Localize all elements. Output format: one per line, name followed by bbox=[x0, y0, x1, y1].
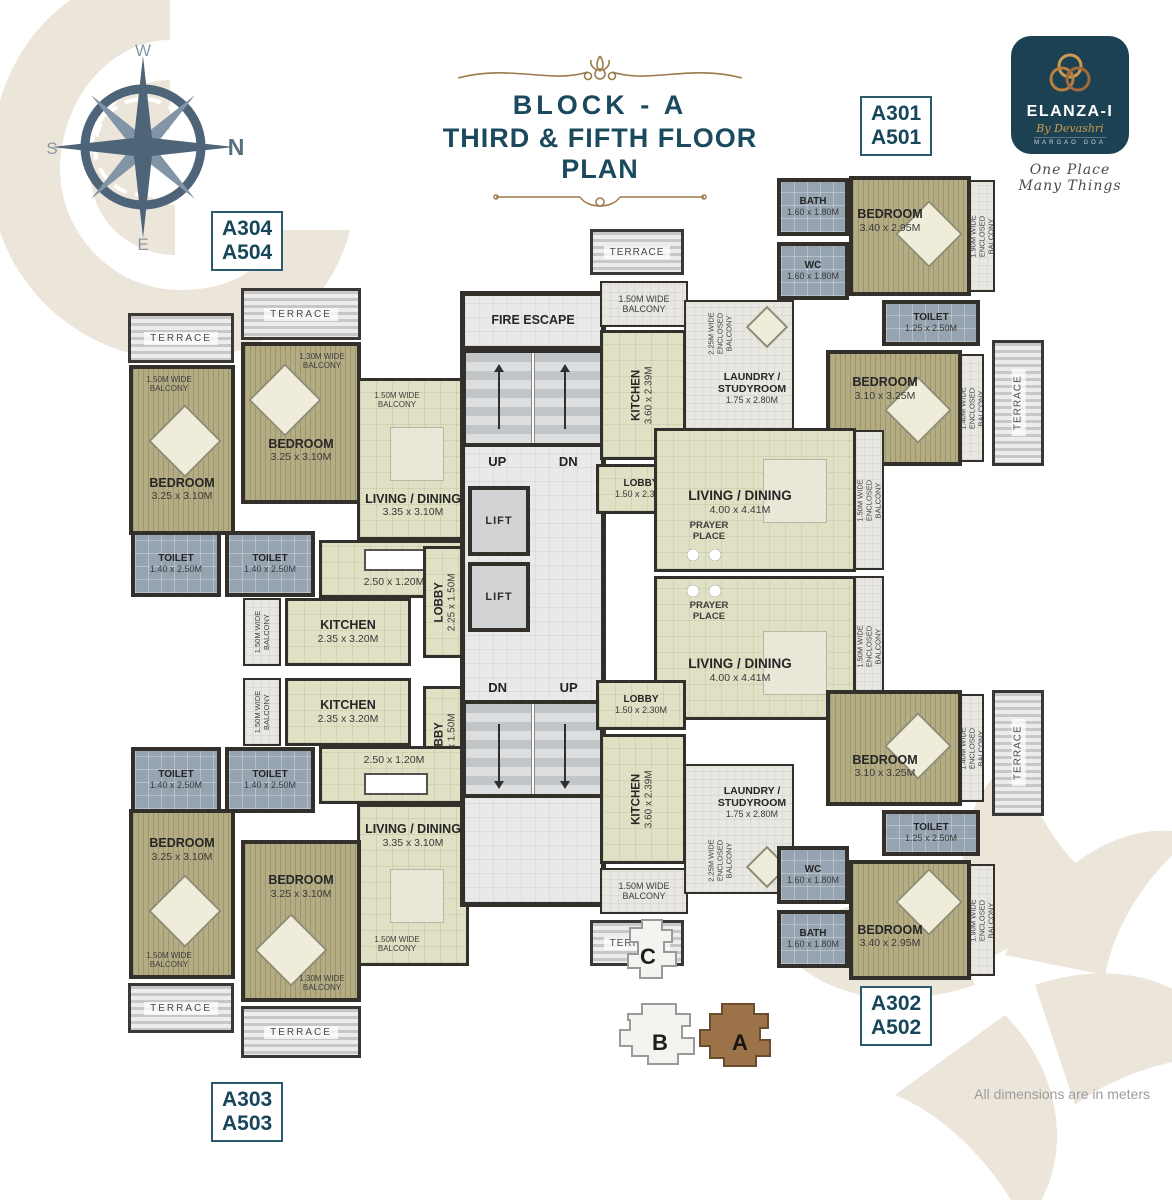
room-bedroom: BEDROOM 3.40 x 2.95M bbox=[849, 860, 971, 980]
balcony-label: 1.40M WIDE ENCLOSED BALCONY bbox=[959, 716, 986, 780]
balcony-label: 1.50M WIDE ENCLOSED BALCONY bbox=[856, 467, 883, 533]
unit-number: A302 bbox=[871, 992, 921, 1016]
room-label: BEDROOM 3.25 x 3.10M bbox=[245, 438, 357, 464]
terrace-label: TERRACE bbox=[1011, 370, 1025, 437]
terrace-label: TERRACE bbox=[604, 246, 671, 259]
unit-label-a302-a502: A302 A502 bbox=[860, 986, 932, 1046]
logo-brand-text: ELANZA-I bbox=[1027, 103, 1114, 121]
room-living-dining: LIVING / DINING 4.00 x 4.41M PRAYER PLAC… bbox=[654, 428, 856, 572]
terrace: TERRACE bbox=[241, 1006, 361, 1058]
balcony-label: 1.50M WIDE BALCONY bbox=[366, 935, 428, 953]
stair-direction-labels: DN UP bbox=[462, 676, 604, 698]
room-label: LAUNDRY / STUDYROOM 1.75 x 2.80M bbox=[712, 372, 792, 406]
dimensions-footnote: All dimensions are in meters bbox=[950, 1086, 1150, 1102]
dn-label: DN bbox=[488, 680, 507, 695]
plan-title: BLOCK - A THIRD & FIFTH FLOOR PLAN bbox=[420, 52, 780, 211]
enclosed-balcony: 1.90M WIDE ENCLOSED BALCONY bbox=[969, 180, 995, 292]
site-key-block-a-label: A bbox=[732, 1030, 748, 1055]
balcony-label: 1.50M WIDE BALCONY bbox=[609, 294, 679, 315]
terrace: TERRACE bbox=[128, 313, 234, 363]
prayer-place-label: PRAYER PLACE bbox=[685, 601, 733, 623]
unit-number: A501 bbox=[871, 126, 921, 150]
room-bedroom: BEDROOM 3.25 x 3.10M 1.30M WIDE BALCONY bbox=[241, 840, 361, 1002]
stair-arrow-up-icon bbox=[564, 367, 566, 429]
up-label: UP bbox=[488, 454, 506, 469]
dining-area: 2.50 x 1.20M bbox=[319, 746, 469, 804]
balcony-label: 1.50M WIDE ENCLOSED BALCONY bbox=[856, 613, 883, 679]
dn-label: DN bbox=[559, 454, 578, 469]
up-label: UP bbox=[560, 680, 578, 695]
compass-w: W bbox=[135, 42, 151, 60]
room-toilet: TOILET 1.40 x 2.50M bbox=[131, 747, 221, 813]
room-label: BEDROOM 3.25 x 3.10M bbox=[133, 477, 231, 503]
dining-table-icon bbox=[364, 773, 428, 795]
unit-label-a304-a504: A304 A504 bbox=[211, 211, 283, 271]
balcony: 1.50M WIDE BALCONY bbox=[600, 868, 688, 914]
room-bedroom: BEDROOM 3.40 x 2.95M bbox=[849, 176, 971, 296]
room-bedroom: BEDROOM 3.10 x 3.25M bbox=[826, 690, 962, 806]
stair-arrow-down-icon bbox=[498, 724, 500, 786]
enclosed-balcony: 1.40M WIDE ENCLOSED BALCONY bbox=[960, 694, 984, 802]
room-label: LIVING / DINING 4.00 x 4.41M bbox=[627, 489, 853, 516]
flourish-bottom-icon bbox=[490, 189, 710, 211]
lift: LIFT bbox=[468, 486, 530, 556]
staircase-upper bbox=[462, 349, 604, 447]
room-toilet: TOILET 1.40 x 2.50M bbox=[131, 531, 221, 597]
staircase-lower bbox=[462, 700, 604, 798]
terrace-label: TERRACE bbox=[144, 332, 218, 345]
compass-n: N bbox=[228, 134, 245, 160]
room-kitchen: KITCHEN 3.60 x 2.39M bbox=[600, 734, 686, 864]
room-lobby: LOBBY 1.50 x 2.30M bbox=[596, 680, 686, 730]
room-bedroom: 1.30M WIDE BALCONY BEDROOM 3.25 x 3.10M bbox=[241, 342, 361, 504]
lift: LIFT bbox=[468, 562, 530, 632]
room-bath: BATH 1.60 x 1.80M bbox=[777, 178, 849, 236]
balcony-label: 1.50M WIDE BALCONY bbox=[138, 951, 200, 969]
block-title: BLOCK - A bbox=[420, 90, 780, 121]
compass-s: S bbox=[46, 139, 57, 158]
compass-e: E bbox=[137, 235, 148, 252]
unit-number: A304 bbox=[222, 217, 272, 241]
stair-arrow-up-icon bbox=[498, 367, 500, 429]
stair-arrow-down-icon bbox=[564, 724, 566, 786]
brand-logo: ELANZA-I By Devashri MARGAO GOA One Plac… bbox=[1008, 36, 1132, 194]
logo-tagline: One Place Many Things bbox=[1008, 162, 1132, 194]
site-key-map: C B A bbox=[598, 916, 788, 1072]
room-label: BEDROOM 3.40 x 2.95M bbox=[853, 208, 927, 234]
balcony-label: 2.25M WIDE ENCLOSED BALCONY bbox=[707, 829, 734, 893]
logo-knot-icon bbox=[1041, 48, 1099, 100]
balcony-label: 1.50M WIDE BALCONY bbox=[138, 375, 200, 393]
terrace-label: TERRACE bbox=[264, 308, 338, 321]
room-label: BEDROOM 3.25 x 3.10M bbox=[133, 837, 231, 863]
bed-icon bbox=[148, 404, 222, 478]
room-bedroom: BEDROOM 3.25 x 3.10M 1.50M WIDE BALCONY bbox=[129, 809, 235, 979]
watermark-flower bbox=[790, 770, 1172, 1200]
balcony-label: 1.50M WIDE BALCONY bbox=[366, 391, 428, 409]
room-laundry-studyroom: 2.25M WIDE ENCLOSED BALCONY LAUNDRY / ST… bbox=[684, 300, 794, 430]
balcony-label: 1.50M WIDE BALCONY bbox=[609, 881, 679, 902]
terrace-label: TERRACE bbox=[264, 1026, 338, 1039]
floor-plan-page: { "header": { "block": "BLOCK - A", "pla… bbox=[0, 0, 1172, 1172]
enclosed-balcony: 1.90M WIDE ENCLOSED BALCONY bbox=[969, 864, 995, 976]
unit-number: A503 bbox=[222, 1112, 272, 1136]
room-label: LIVING / DINING 3.35 x 3.10M bbox=[360, 823, 466, 849]
balcony-label: 1.50M WIDE BALCONY bbox=[253, 602, 271, 662]
room-toilet: TOILET 1.40 x 2.50M bbox=[225, 531, 315, 597]
dining-dim-label: 2.50 x 1.20M bbox=[322, 754, 466, 767]
unit-number: A303 bbox=[222, 1088, 272, 1112]
unit-label-a303-a503: A303 A503 bbox=[211, 1082, 283, 1142]
room-kitchen: KITCHEN 2.35 x 3.20M bbox=[285, 678, 411, 746]
terrace: TERRACE bbox=[590, 229, 684, 275]
room-toilet: TOILET 1.40 x 2.50M bbox=[225, 747, 315, 813]
rug-icon bbox=[390, 869, 444, 923]
fire-escape: FIRE ESCAPE bbox=[462, 293, 604, 349]
balcony: 1.50M WIDE BALCONY bbox=[600, 281, 688, 327]
room-label: LIVING / DINING 3.35 x 3.10M bbox=[360, 493, 466, 519]
enclosed-balcony: 1.40M WIDE ENCLOSED BALCONY bbox=[960, 354, 984, 462]
room-living-dining: LIVING / DINING 3.35 x 3.10M 1.50M WIDE … bbox=[357, 804, 469, 966]
room-toilet: TOILET 1.25 x 2.50M bbox=[882, 300, 980, 346]
room-toilet: TOILET 1.25 x 2.50M bbox=[882, 810, 980, 856]
unit-number: A502 bbox=[871, 1016, 921, 1040]
balcony-label: 1.50M WIDE BALCONY bbox=[253, 682, 271, 742]
room-label: KITCHEN 3.60 x 2.39M bbox=[631, 339, 656, 451]
site-key-block-b-label: B bbox=[652, 1030, 668, 1055]
room-label: LAUNDRY / STUDYROOM 1.75 x 2.80M bbox=[712, 786, 792, 820]
room-label: KITCHEN 3.60 x 2.39M bbox=[631, 743, 656, 855]
dining-table-icon bbox=[364, 549, 428, 571]
stair-direction-labels: UP DN bbox=[462, 450, 604, 472]
prayer-place-label: PRAYER PLACE bbox=[685, 521, 733, 543]
site-key-block-c-label: C bbox=[640, 944, 656, 969]
balcony-label: 1.90M WIDE ENCLOSED BALCONY bbox=[969, 204, 996, 268]
balcony-label: 1.40M WIDE ENCLOSED BALCONY bbox=[959, 376, 986, 440]
terrace-label: TERRACE bbox=[1011, 720, 1025, 787]
unit-label-a301-a501: A301 A501 bbox=[860, 96, 932, 156]
prayer-urns-icon bbox=[681, 545, 727, 565]
stair-rail bbox=[531, 704, 535, 794]
terrace: TERRACE bbox=[992, 690, 1044, 816]
room-wc: WC 1.60 x 1.80M bbox=[777, 846, 849, 904]
terrace: TERRACE bbox=[128, 983, 234, 1033]
bed-icon bbox=[746, 306, 788, 348]
unit-number: A301 bbox=[871, 102, 921, 126]
bed-icon bbox=[248, 363, 322, 437]
logo-location-text: MARGAO GOA bbox=[1034, 137, 1106, 146]
room-label: LOBBY 2.25 x 1.50M bbox=[434, 554, 459, 650]
room-label: BEDROOM 3.40 x 2.95M bbox=[853, 924, 927, 950]
logo-by-text: By Devashri bbox=[1036, 122, 1103, 135]
prayer-urns-icon bbox=[681, 581, 727, 601]
room-label: BEDROOM 3.10 x 3.25M bbox=[812, 754, 958, 780]
balcony: 1.50M WIDE BALCONY bbox=[243, 598, 281, 666]
logo-card: ELANZA-I By Devashri MARGAO GOA bbox=[1011, 36, 1129, 154]
balcony-label: 1.30M WIDE BALCONY bbox=[291, 974, 353, 992]
room-bedroom: 1.50M WIDE BALCONY BEDROOM 3.25 x 3.10M bbox=[129, 365, 235, 535]
balcony-label: 1.30M WIDE BALCONY bbox=[291, 352, 353, 370]
bed-icon bbox=[148, 874, 222, 948]
room-wc: WC 1.60 x 1.80M bbox=[777, 242, 849, 300]
balcony-label: 2.25M WIDE ENCLOSED BALCONY bbox=[707, 302, 734, 366]
unit-number: A504 bbox=[222, 241, 272, 265]
room-label: BEDROOM 3.25 x 3.10M bbox=[245, 874, 357, 900]
room-living-dining: 1.50M WIDE BALCONY LIVING / DINING 3.35 … bbox=[357, 378, 469, 540]
terrace-label: TERRACE bbox=[144, 1002, 218, 1015]
balcony-label: 1.90M WIDE ENCLOSED BALCONY bbox=[969, 888, 996, 952]
terrace: TERRACE bbox=[241, 288, 361, 340]
enclosed-balcony: 1.50M WIDE ENCLOSED BALCONY bbox=[854, 430, 884, 570]
balcony: 1.50M WIDE BALCONY bbox=[243, 678, 281, 746]
rug-icon bbox=[390, 427, 444, 481]
flourish-top-icon bbox=[450, 52, 750, 90]
room-label: BEDROOM 3.10 x 3.25M bbox=[812, 376, 958, 402]
stair-rail bbox=[531, 353, 535, 443]
room-kitchen: KITCHEN 2.35 x 3.20M bbox=[285, 598, 411, 666]
terrace: TERRACE bbox=[992, 340, 1044, 466]
floor-plan-title: THIRD & FIFTH FLOOR PLAN bbox=[420, 123, 780, 185]
